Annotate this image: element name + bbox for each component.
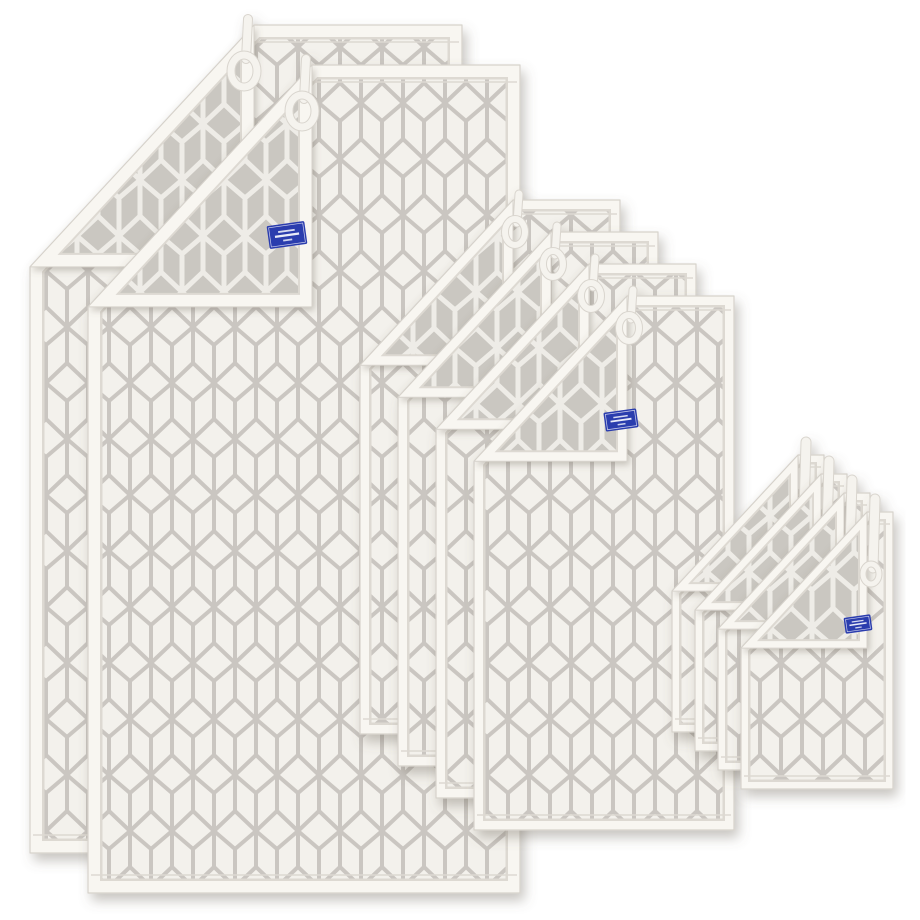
towel-set-scene — [0, 0, 920, 920]
product-photo-towel-set — [0, 0, 920, 920]
